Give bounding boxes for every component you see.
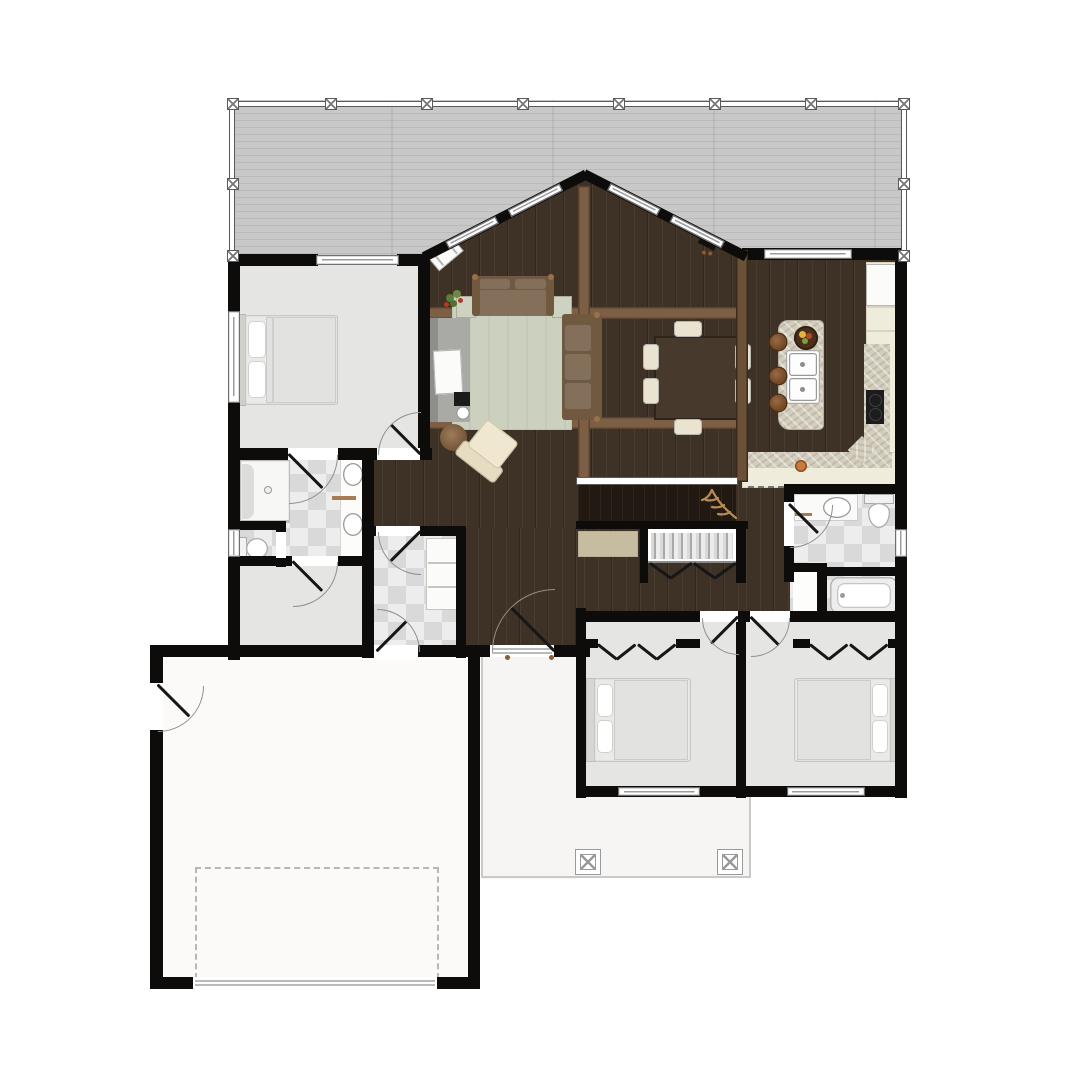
wall-bedroom3-closet: [888, 639, 901, 648]
entry-light: [549, 655, 554, 660]
parking-stall-dashed: [195, 867, 439, 979]
railing-post: [227, 178, 239, 190]
orange-pot: [795, 460, 807, 472]
railing-post: [227, 250, 239, 262]
bar-stool: [770, 334, 786, 350]
dining-chair: [674, 321, 702, 337]
sofa: [560, 312, 604, 422]
kitchen-window: [764, 249, 852, 259]
tub-faucet: [840, 593, 845, 598]
finial: [548, 274, 554, 280]
railing-post: [227, 98, 239, 110]
wall-garage-right: [468, 657, 480, 989]
railing-post: [898, 250, 910, 262]
dining-chair: [643, 344, 659, 370]
porch-column: [717, 849, 743, 875]
wall-tub-divider: [825, 567, 905, 576]
wall-bedroom3-closet: [793, 639, 810, 648]
railing-post: [898, 98, 910, 110]
railing-post: [709, 98, 721, 110]
cooktop: [866, 390, 884, 424]
porch-column: [575, 849, 601, 875]
wall-bedroom2-closet: [676, 639, 700, 648]
drain: [800, 362, 805, 367]
hall-closet-clothes: [651, 533, 733, 559]
wall-bedroom2-closet: [586, 639, 598, 648]
wall-hallcloset-right: [736, 523, 746, 583]
railing-post: [805, 98, 817, 110]
cabinet-divider: [866, 330, 896, 332]
wall-laundry-right: [456, 526, 466, 658]
bedroom2-bed: [586, 678, 691, 762]
sink: [343, 463, 363, 486]
kitchen-pass-dashed: [748, 486, 784, 488]
closet-track: [648, 561, 736, 563]
wall-hallcloset-left: [640, 529, 648, 583]
porch-edge-right: [749, 797, 751, 877]
bedroom2-window: [618, 787, 700, 796]
potted-plant: [444, 290, 466, 310]
master-shower: [240, 460, 290, 523]
linen-closet-interior: [793, 572, 818, 614]
antler-decor: [698, 484, 742, 522]
cabinet-divider: [866, 306, 896, 308]
master-slider-to-deck: [316, 255, 399, 265]
refrigerator: [866, 264, 896, 306]
bath2-toilet: [864, 494, 894, 530]
media-console: [426, 318, 470, 422]
dining-chair: [643, 378, 659, 404]
island-sink: [786, 350, 820, 404]
door-gap-toilet: [276, 532, 286, 558]
bedroom3-bed: [794, 678, 899, 762]
hall-rug: [578, 531, 638, 557]
railing-post: [613, 98, 625, 110]
railing-post: [325, 98, 337, 110]
drain: [800, 387, 805, 392]
garage-door: [193, 977, 437, 989]
wall-bedroom2-left: [576, 608, 586, 798]
toilet-room-window: [228, 529, 240, 557]
wall-bath2-top: [784, 484, 907, 494]
tv: [433, 349, 463, 394]
wall: [228, 254, 318, 266]
sink: [343, 513, 363, 536]
shower-drain: [264, 486, 272, 494]
dining-table: [654, 336, 738, 420]
railing-post: [898, 178, 910, 190]
wall-kitchen-divider: [736, 250, 748, 482]
bathtub: [830, 577, 898, 614]
porch-floor-horizontal: [482, 797, 750, 877]
laundry-cabinet: [426, 538, 458, 610]
master-bedroom-window: [228, 311, 240, 403]
berries: [458, 298, 463, 303]
vanity-shelf: [332, 496, 356, 500]
finial: [472, 274, 478, 280]
fireplace-icon: [454, 392, 470, 406]
wall-right-exterior: [895, 248, 907, 798]
bathroom2-window: [895, 529, 907, 557]
porch-edge-bottom: [481, 876, 751, 878]
bedroom3-window: [787, 787, 865, 796]
railing-post: [517, 98, 529, 110]
shower-bench: [242, 464, 254, 519]
bar-stool: [770, 395, 786, 411]
porch-edge-left: [481, 657, 483, 878]
master-bed: [236, 314, 338, 406]
railing-post: [421, 98, 433, 110]
dining-chair: [674, 419, 702, 435]
fruit-bowl: [794, 326, 818, 350]
bar-stool: [770, 368, 786, 384]
entry-light: [505, 655, 510, 660]
loveseat: [472, 274, 554, 320]
floor-plan: [0, 0, 1080, 1080]
stair-railing-bottom: [576, 521, 748, 529]
